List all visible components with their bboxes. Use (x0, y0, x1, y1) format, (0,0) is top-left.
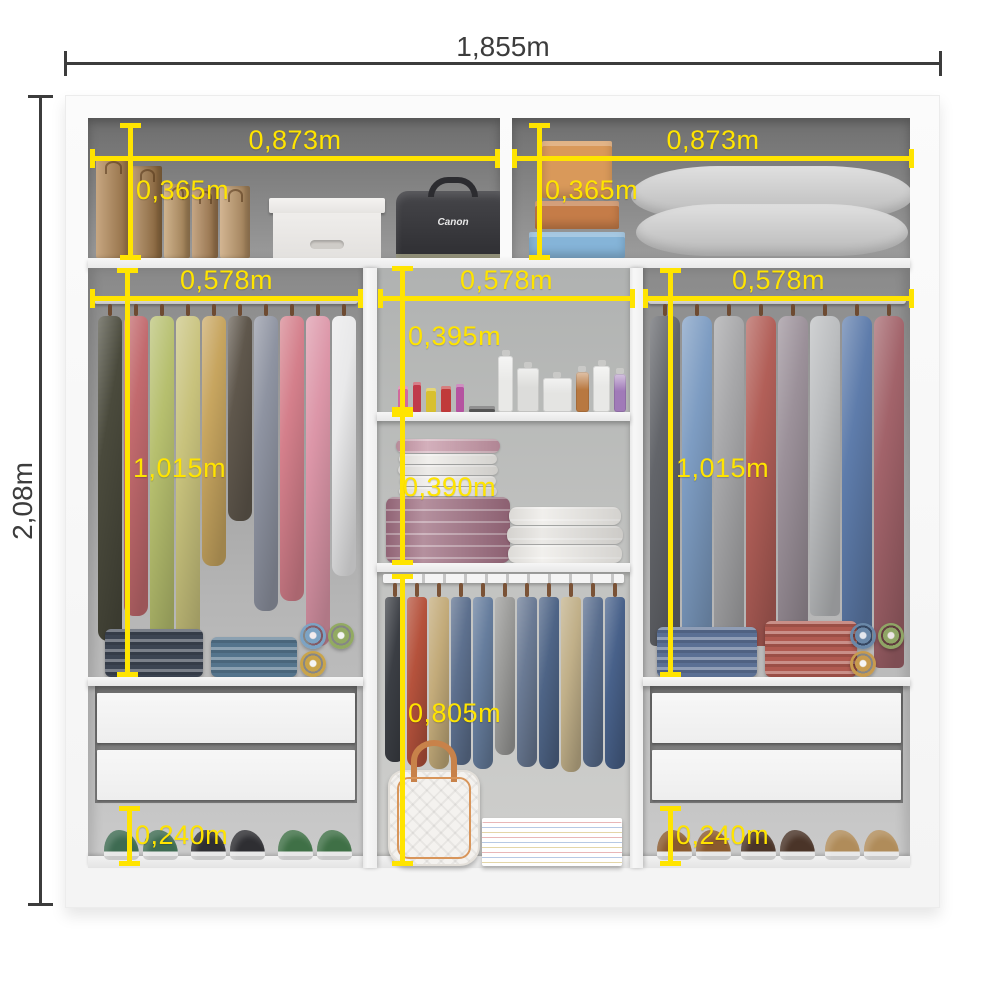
stack-item (211, 637, 297, 677)
cosmetic-item (441, 386, 451, 412)
middle-upper-shelf-board (377, 412, 630, 421)
dimension-line (668, 268, 673, 677)
roll-item (878, 623, 904, 649)
dimension-label: 0,578m (378, 265, 635, 296)
dimension-line (378, 296, 635, 301)
left-folded-shelf-board (88, 677, 363, 686)
dimension-tick (392, 412, 413, 417)
perfume-item (543, 378, 572, 412)
right-drawer-top (652, 693, 901, 743)
perfume-item (517, 368, 538, 412)
pant-item (583, 597, 603, 767)
right-drawer-bottom (652, 750, 901, 800)
dimension-label: 0,873m (512, 125, 914, 156)
towel-item (396, 439, 500, 453)
dimension-label: 0,240m (676, 820, 769, 851)
dimension-line (643, 296, 914, 301)
dimension-line (400, 266, 405, 412)
dimension-line (127, 806, 132, 866)
pant-item (517, 597, 537, 767)
pant-item (451, 597, 471, 765)
dimension-tick (660, 861, 681, 866)
towel-stack-right (505, 500, 625, 563)
garment-item (280, 316, 304, 601)
towel-item (399, 454, 497, 464)
perfume-item (593, 366, 610, 412)
dimension-label: 0,365m (545, 175, 638, 206)
dimension-tick (120, 255, 141, 260)
dimension-tick (529, 255, 550, 260)
dimension-label: 0,578m (643, 265, 914, 296)
dimension-label: 2,08m (7, 462, 39, 540)
dimension-tick (660, 672, 681, 677)
pant-item (539, 597, 559, 769)
dimension-label: 0,805m (408, 698, 501, 729)
wardrobe-body: Canon (65, 95, 940, 908)
dimension-tick (117, 268, 138, 273)
dimension-line (400, 574, 405, 866)
bagitem-item (96, 158, 130, 258)
cosmetic-item (413, 382, 421, 412)
towel-item (508, 545, 622, 563)
shoe-item (278, 826, 352, 860)
roll-item (850, 651, 876, 677)
middle-pants-rail (383, 574, 624, 583)
dimension-tick (529, 123, 550, 128)
cosmetic-item (426, 388, 436, 412)
right-drawer-unit (650, 686, 903, 803)
roll-item (300, 651, 326, 677)
pillow-item (636, 204, 908, 256)
roll-item (300, 623, 326, 649)
dimension-tick (392, 560, 413, 565)
dimension-tick (119, 806, 140, 811)
storage-box-lid (269, 198, 385, 213)
striped-gift-box (482, 818, 622, 866)
pant-item (473, 597, 493, 769)
dimension-tick (392, 266, 413, 271)
right-rolled-clothes (850, 555, 908, 677)
pant-item (561, 597, 581, 772)
dimension-label: 0,395m (408, 321, 501, 352)
shoe-item (825, 826, 899, 860)
dimension-tick (660, 806, 681, 811)
dimension-label: 1,015m (133, 453, 226, 484)
dimension-tick (28, 95, 53, 98)
dimension-label: 0,873m (90, 125, 500, 156)
dimension-line (512, 156, 914, 161)
garment-item (202, 316, 226, 566)
column-divider-right (630, 268, 643, 868)
middle-lower-shelf-board (377, 563, 630, 572)
dimension-line (39, 95, 42, 906)
dimension-label: 0,365m (136, 175, 229, 206)
storage-box-handle (310, 240, 344, 249)
perfume-item (614, 374, 626, 412)
stack-item (765, 621, 857, 677)
left-drawer-bottom (97, 750, 355, 800)
dimension-tick (117, 672, 138, 677)
dimension-label: 1,855m (64, 31, 942, 63)
garment-item (228, 316, 252, 521)
perfume-item (576, 372, 590, 412)
left-drawer-unit (95, 686, 357, 803)
camera-bag: Canon (396, 191, 500, 258)
dimension-line (668, 806, 673, 866)
dimension-line (90, 156, 500, 161)
storage-box (273, 198, 381, 258)
wardrobe-dimensions-diagram: 1,855m 2,08m Canon (0, 0, 1000, 1000)
dimension-line (537, 123, 542, 260)
dimension-tick (119, 861, 140, 866)
towel-item (507, 526, 623, 544)
dimension-label: 1,015m (676, 453, 769, 484)
dimension-label: 0,240m (135, 820, 228, 851)
garment-item (332, 316, 356, 576)
roll-item (328, 623, 354, 649)
dimension-tick (28, 903, 53, 906)
dimension-line (125, 268, 130, 677)
stack-item (105, 629, 203, 677)
perfume-item (498, 356, 513, 412)
towel-item (509, 507, 621, 525)
dimension-tick (392, 861, 413, 866)
storage-box-body (273, 213, 381, 258)
dimension-tick (120, 123, 141, 128)
dimension-line (90, 296, 363, 301)
perfumes-group (498, 352, 626, 412)
pant-item (605, 597, 625, 769)
pillows-group (634, 146, 910, 256)
dimension-line (128, 123, 133, 260)
roll-item (850, 623, 876, 649)
cosmetic-item (456, 384, 464, 412)
dimension-tick (392, 574, 413, 579)
left-rolled-clothes (300, 560, 360, 677)
column-divider-left (363, 268, 377, 868)
camera-bag-logo: Canon (396, 217, 500, 228)
dimension-label: 0,390m (403, 472, 496, 503)
left-drawer-top (97, 693, 355, 743)
pant-item (495, 597, 515, 755)
dimension-tick (660, 268, 681, 273)
cosmetics-group (398, 374, 498, 412)
right-folded-shelf-board (643, 677, 910, 686)
